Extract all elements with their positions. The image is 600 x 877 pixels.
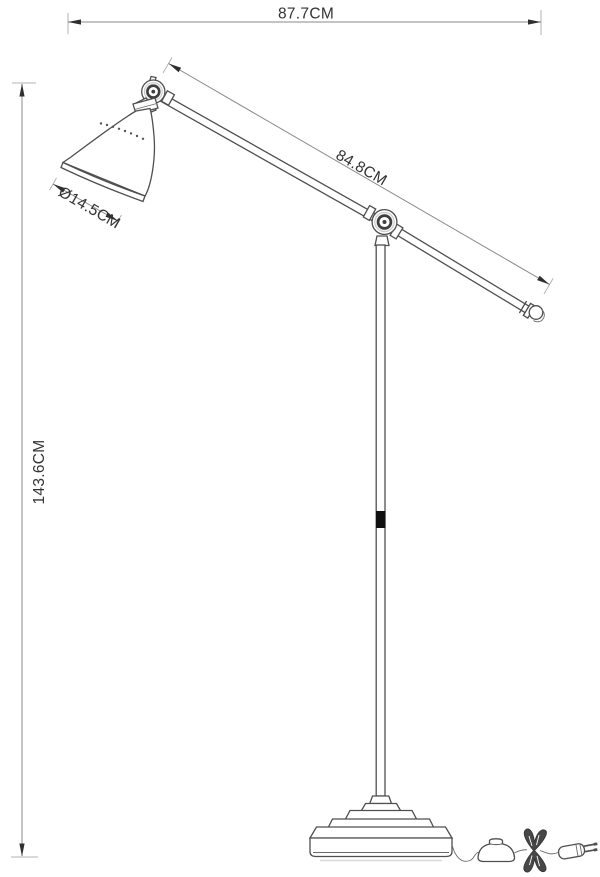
arrow-left-icon (68, 19, 81, 24)
lamp-dimension-diagram: 87.7CM 143.6CM 84.8CM Ø14.5CM (0, 0, 600, 877)
vent-hole (130, 132, 132, 134)
foot-switch-body (478, 844, 515, 862)
pole-top-collar (375, 236, 389, 246)
lamp-pole-and-base (310, 236, 452, 861)
arrow-upper-left-icon (169, 64, 182, 73)
arrow-right-icon (528, 19, 541, 24)
cord-bundle (524, 829, 547, 872)
vent-hole (142, 138, 144, 140)
arrow-up-icon (19, 84, 24, 97)
vent-hole (106, 124, 108, 126)
lamp-arm-assembly (150, 89, 544, 322)
vent-hole (124, 130, 126, 132)
vent-hole (112, 126, 114, 128)
dimension-overall-height: 143.6CM (11, 83, 48, 857)
arm-dimension-label: 84.8CM (333, 147, 390, 190)
power-cord-assembly (452, 829, 599, 872)
dimension-arm-length: 84.8CM (163, 57, 553, 294)
lamp-shade (61, 98, 158, 202)
height-adjustment-mark (376, 511, 385, 528)
width-dimension-label: 87.7CM (278, 6, 334, 23)
cord-from-base (452, 845, 479, 861)
pivot-axle-dot (151, 90, 155, 94)
elbow-axle-dot (383, 220, 387, 224)
cord-switch-to-bundle (515, 850, 528, 853)
power-plug (558, 841, 599, 860)
vent-hole (118, 128, 120, 130)
cord-bundle-to-plug (540, 851, 558, 854)
plug-prong-tip-upper (594, 842, 598, 845)
pole-base-collar (370, 796, 392, 804)
height-dimension-label: 143.6CM (31, 440, 48, 505)
foot-switch-button (490, 839, 503, 844)
arrow-lower-right-icon (537, 276, 550, 285)
diagram-canvas: 87.7CM 143.6CM 84.8CM Ø14.5CM (0, 0, 600, 877)
arrow-down-icon (19, 844, 24, 857)
elbow-joint (372, 210, 397, 235)
plug-prong-tip-lower (594, 848, 598, 851)
dimension-overall-width: 87.7CM (68, 6, 541, 36)
lower-arm (382, 220, 535, 316)
end-cap-knob (529, 306, 543, 320)
base-tiers (310, 804, 452, 839)
shade-dimension-label: Ø14.5CM (55, 184, 123, 233)
vent-hole (100, 122, 102, 124)
vent-hole (136, 135, 138, 137)
base-drum (310, 838, 452, 857)
